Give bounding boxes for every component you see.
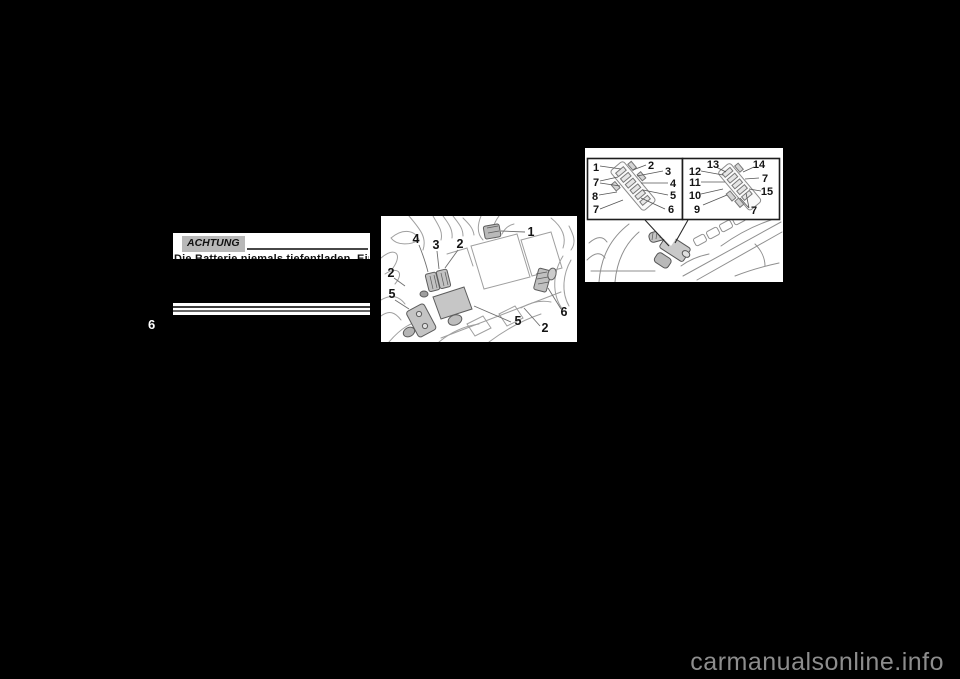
callout-r14: 14 xyxy=(753,159,766,171)
scanned-manual-page: { "page": { "chapter_tab": "6", "waterma… xyxy=(0,0,960,679)
callout-5-left: 5 xyxy=(389,287,396,301)
callout-5-bottom: 5 xyxy=(515,314,522,328)
callout-2-top: 2 xyxy=(457,237,464,251)
callout-l5: 5 xyxy=(670,190,676,202)
caution-label: ACHTUNG xyxy=(182,236,245,252)
callout-r9: 9 xyxy=(694,204,700,216)
fusebox-illustration: 1 2 3 7 4 8 5 7 6 13 14 12 7 11 15 10 9 … xyxy=(585,148,783,282)
callout-2-left: 2 xyxy=(388,266,395,280)
engine-relay-diagram: 4 3 2 1 2 5 5 2 6 xyxy=(381,216,577,342)
callout-3: 3 xyxy=(433,238,440,252)
callout-6: 6 xyxy=(561,305,568,319)
callout-l4: 4 xyxy=(670,178,677,190)
caution-text-clipped: Die Batterie niemals tiefentladen. Ein xyxy=(174,253,369,259)
chapter-number-tab: 6 xyxy=(148,317,155,332)
callout-2-bottom: 2 xyxy=(542,321,549,335)
callout-r7b: 7 xyxy=(751,205,757,217)
callout-4: 4 xyxy=(413,232,420,246)
callout-r15: 15 xyxy=(761,186,773,198)
callout-r10: 10 xyxy=(689,190,701,202)
fusebox-location-diagram: 1 2 3 7 4 8 5 7 6 13 14 12 7 11 15 10 9 … xyxy=(585,148,783,282)
callout-l8: 8 xyxy=(592,191,598,203)
callout-l1: 1 xyxy=(593,162,599,174)
watermark-link[interactable]: carmanualsonline.info xyxy=(690,648,944,677)
callout-r13: 13 xyxy=(707,159,719,171)
callout-r7a: 7 xyxy=(762,173,768,185)
callout-l2: 2 xyxy=(648,160,654,172)
engine-relay-illustration: 4 3 2 1 2 5 5 2 6 xyxy=(381,216,577,342)
callout-l7a: 7 xyxy=(593,177,599,189)
callout-l6: 6 xyxy=(668,204,674,216)
caution-block: ACHTUNG Die Batterie niemals tiefentlade… xyxy=(173,233,370,259)
section-end-rule xyxy=(173,303,370,315)
engine-components xyxy=(402,224,558,339)
caution-rule xyxy=(247,248,368,250)
callout-l3: 3 xyxy=(665,166,671,178)
callout-1: 1 xyxy=(528,225,535,239)
callout-l7b: 7 xyxy=(593,204,599,216)
callout-r11: 11 xyxy=(689,177,701,189)
